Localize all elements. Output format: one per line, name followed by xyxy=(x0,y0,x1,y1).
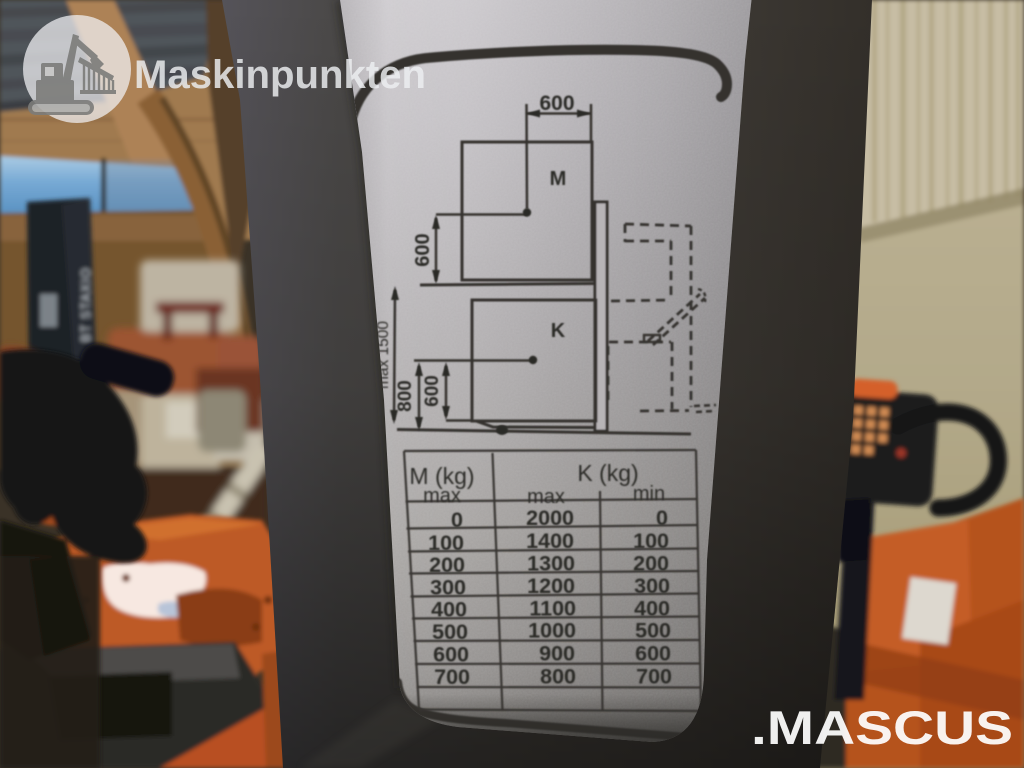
svg-text:600: 600 xyxy=(635,642,671,666)
svg-text:300: 300 xyxy=(430,576,466,600)
svg-text:0: 0 xyxy=(451,508,463,532)
svg-text:900: 900 xyxy=(539,642,575,666)
svg-text:300: 300 xyxy=(634,574,670,598)
svg-text:Maskinpunkten: Maskinpunkten xyxy=(134,53,426,97)
svg-text:600: 600 xyxy=(412,233,434,266)
svg-text:100: 100 xyxy=(428,531,464,555)
svg-text:max: max xyxy=(527,486,565,508)
svg-text:min: min xyxy=(633,483,665,505)
svg-text:500: 500 xyxy=(432,620,468,644)
svg-text:1200: 1200 xyxy=(527,574,575,598)
svg-text:.MASCUS: .MASCUS xyxy=(751,701,1013,754)
svg-text:800: 800 xyxy=(540,665,576,689)
svg-text:M: M xyxy=(550,168,567,190)
svg-text:2000: 2000 xyxy=(526,506,574,530)
svg-text:600: 600 xyxy=(539,92,574,115)
svg-text:max: max xyxy=(423,485,461,507)
svg-text:200: 200 xyxy=(429,553,465,577)
svg-text:1000: 1000 xyxy=(528,619,576,643)
svg-text:100: 100 xyxy=(633,529,669,553)
svg-text:700: 700 xyxy=(434,665,470,689)
svg-text:800: 800 xyxy=(395,380,416,412)
svg-text:1400: 1400 xyxy=(526,529,574,553)
svg-text:1100: 1100 xyxy=(529,597,576,621)
svg-text:BT STAXIO: BT STAXIO xyxy=(79,267,93,342)
svg-text:K (kg): K (kg) xyxy=(577,460,638,486)
svg-text:1300: 1300 xyxy=(527,552,575,576)
svg-text:K: K xyxy=(551,320,566,342)
svg-text:600: 600 xyxy=(422,375,443,407)
svg-text:200: 200 xyxy=(633,552,669,576)
svg-text:600: 600 xyxy=(433,643,469,667)
svg-text:700: 700 xyxy=(636,665,672,689)
svg-text:400: 400 xyxy=(634,597,670,621)
svg-text:400: 400 xyxy=(431,598,467,622)
svg-text:500: 500 xyxy=(635,619,671,643)
svg-text:0: 0 xyxy=(656,506,668,530)
